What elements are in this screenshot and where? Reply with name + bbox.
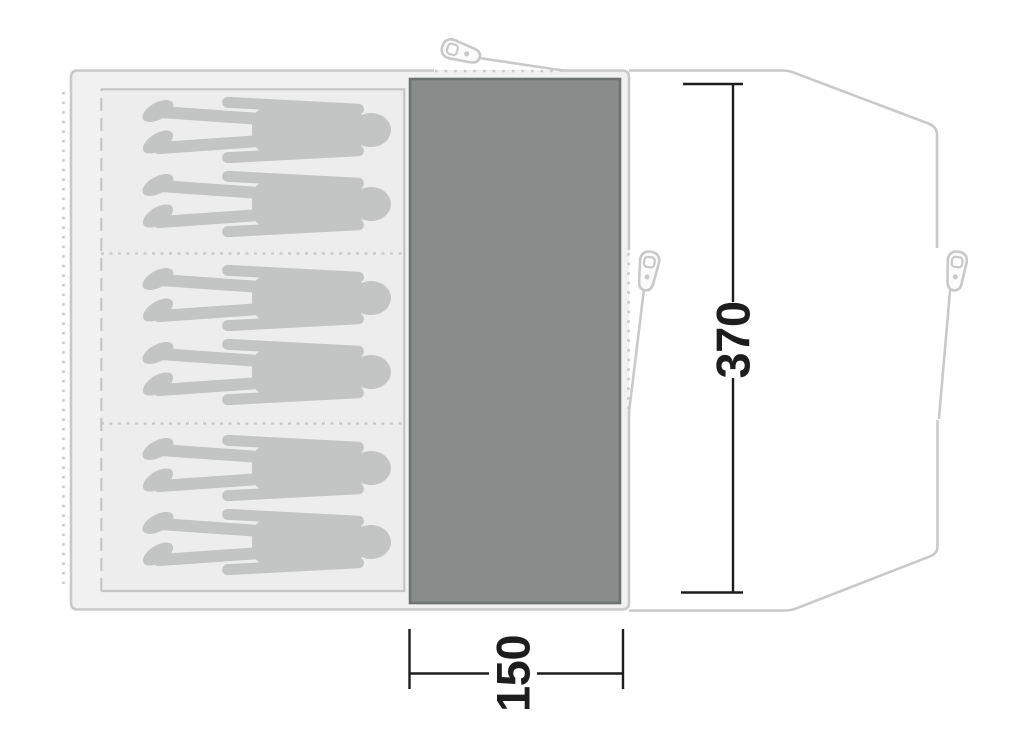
porch-outline-lower bbox=[629, 420, 938, 611]
width-dimension-label: 150 bbox=[487, 635, 540, 712]
width-dimension: 150 bbox=[410, 629, 624, 712]
guy-rope bbox=[472, 57, 563, 71]
guy-rope bbox=[939, 291, 950, 418]
tent-floorplan-diagram: 370 150 bbox=[0, 0, 1024, 742]
tent-peg-middle-icon bbox=[636, 250, 661, 292]
guy-rope bbox=[629, 289, 644, 412]
depth-dimension: 370 bbox=[681, 84, 760, 593]
depth-dimension-label: 370 bbox=[707, 302, 760, 379]
floorplan-svg: 370 150 bbox=[0, 0, 1024, 742]
tent-peg-right-icon bbox=[944, 250, 968, 291]
porch-outline-upper bbox=[629, 71, 937, 249]
groundsheet-panel bbox=[410, 79, 620, 603]
tent-peg-top-icon bbox=[440, 37, 483, 67]
